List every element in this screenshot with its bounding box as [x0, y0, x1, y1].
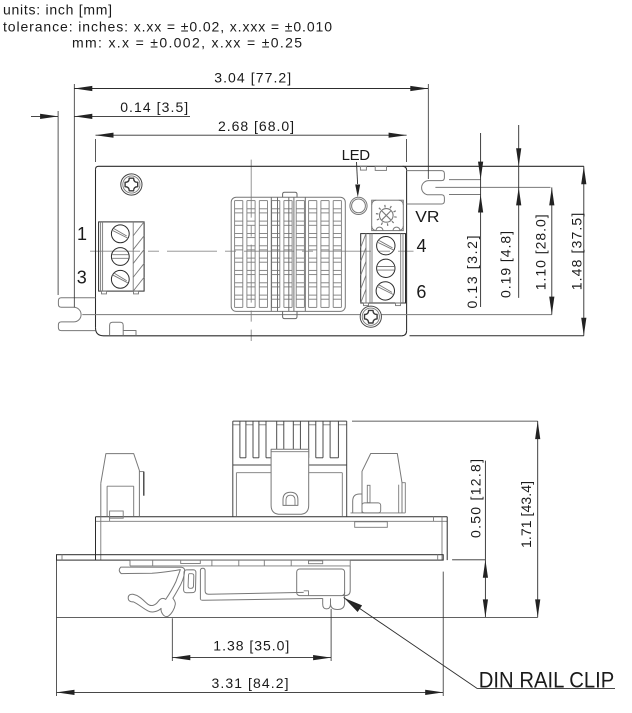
- svg-text:0.50 [12.8]: 0.50 [12.8]: [468, 459, 484, 538]
- svg-text:0.19 [4.8]: 0.19 [4.8]: [498, 231, 514, 298]
- svg-text:units: inch [mm]: units: inch [mm]: [3, 2, 112, 18]
- svg-text:LED: LED: [342, 147, 371, 164]
- svg-text:3: 3: [77, 268, 87, 288]
- svg-text:DIN RAIL CLIP: DIN RAIL CLIP: [479, 668, 615, 693]
- svg-text:3.04 [77.2]: 3.04 [77.2]: [214, 69, 291, 85]
- svg-text:1.71 [43.4]: 1.71 [43.4]: [518, 481, 534, 548]
- svg-text:6: 6: [416, 282, 426, 302]
- svg-text:mm: x.x = ±0.002, x.xx = ±0.25: mm: x.x = ±0.002, x.xx = ±0.25: [72, 34, 302, 50]
- svg-text:1.10 [28.0]: 1.10 [28.0]: [532, 214, 548, 290]
- svg-text:1: 1: [77, 224, 87, 244]
- svg-text:1.38 [35.0]: 1.38 [35.0]: [213, 638, 289, 654]
- svg-text:1.48 [37.5]: 1.48 [37.5]: [568, 213, 584, 291]
- svg-text:3.31 [84.2]: 3.31 [84.2]: [212, 675, 289, 691]
- svg-text:0.13 [3.2]: 0.13 [3.2]: [464, 236, 480, 309]
- svg-text:VR: VR: [415, 209, 439, 226]
- svg-text:4: 4: [416, 236, 426, 256]
- svg-text:2.68 [68.0]: 2.68 [68.0]: [218, 118, 294, 134]
- svg-text:tolerance: inches: x.xx = ±0.0: tolerance: inches: x.xx = ±0.02, x.xxx =…: [3, 18, 332, 34]
- svg-text:0.14 [3.5]: 0.14 [3.5]: [120, 99, 188, 115]
